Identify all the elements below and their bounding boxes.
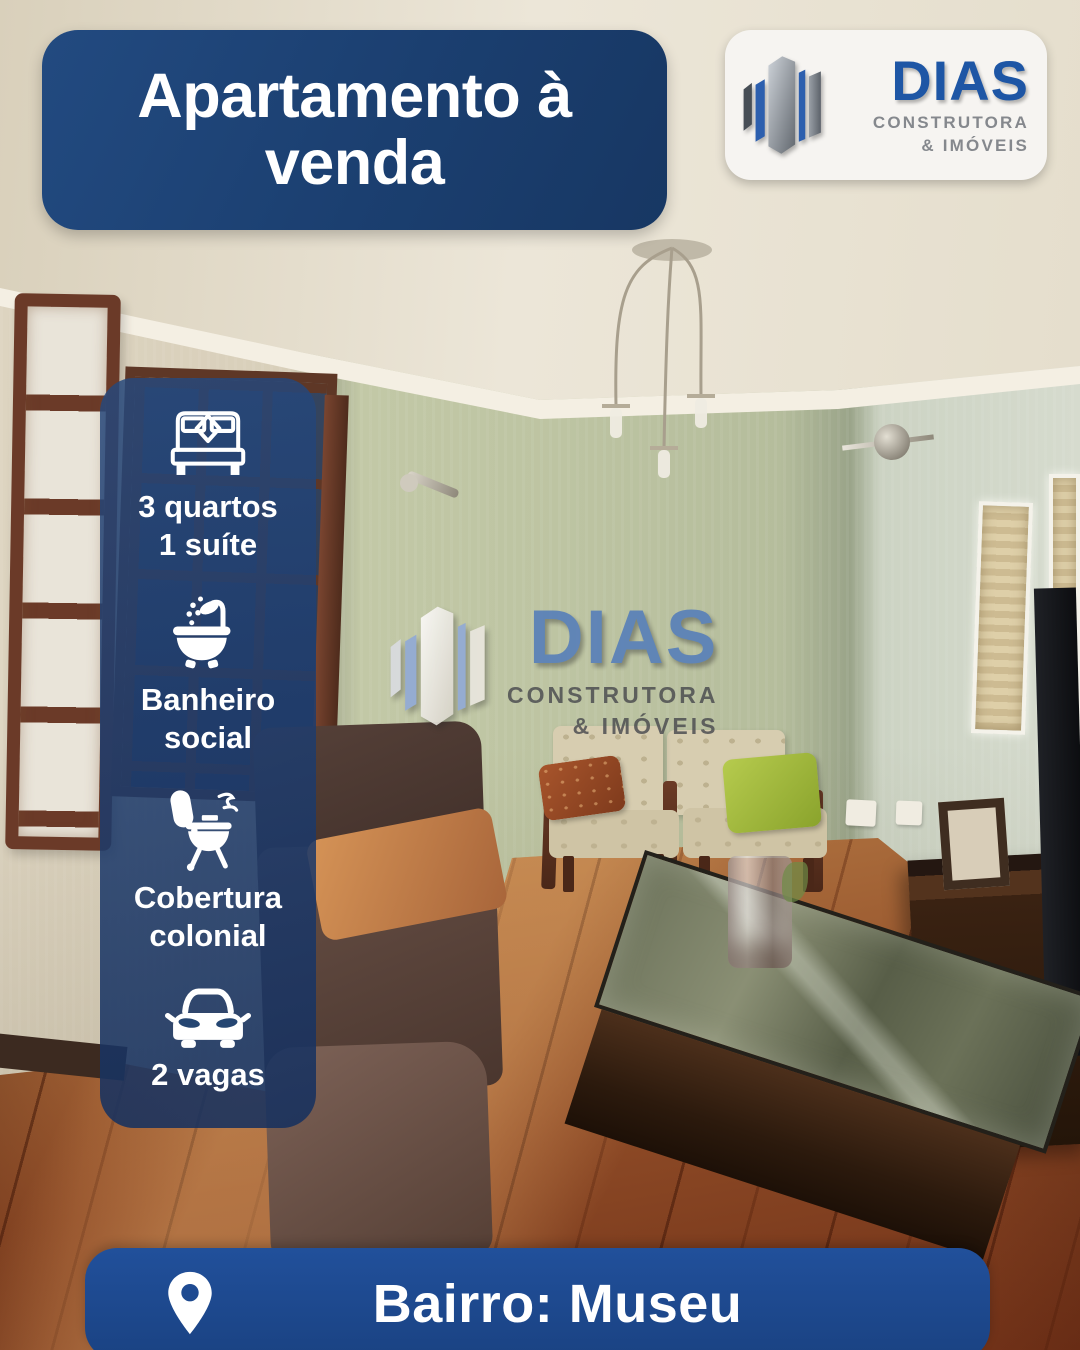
feature-bedrooms: 3 quartos 1 suíte [138, 402, 278, 564]
features-panel: 3 quartos 1 suíte Banheiro social [100, 378, 316, 1128]
picture-frame [938, 798, 1010, 890]
feature-parking: 2 vagas [151, 986, 265, 1094]
title-banner: Apartamento à venda [42, 30, 667, 230]
wall-sconce-icon [874, 424, 910, 460]
feature-text: Cobertura colonial [134, 879, 282, 955]
building-icon [739, 46, 831, 164]
barbecue-grill-icon [167, 789, 249, 871]
watermark-logo: DIAS CONSTRUTORA & IMÓVEIS [385, 580, 718, 752]
brand-tagline: CONSTRUTORA [873, 113, 1029, 133]
brand-name: DIAS [891, 54, 1029, 107]
watermark-tagline: CONSTRUTORA [507, 682, 718, 709]
watermark-brand-name: DIAS [529, 602, 719, 674]
brand-text: DIAS CONSTRUTORA & IMÓVEIS [831, 54, 1029, 156]
chair-leg [563, 856, 574, 892]
brand-logo-card: DIAS CONSTRUTORA & IMÓVEIS [725, 30, 1047, 180]
location-label: Bairro: Museu [215, 1273, 990, 1335]
right-window-blind [971, 501, 1033, 735]
feature-text: 3 quartos 1 suíte [138, 488, 278, 564]
location-bar: Bairro: Museu [85, 1248, 990, 1350]
green-pillow [722, 752, 822, 834]
feature-bathroom: Banheiro social [141, 595, 275, 757]
feature-text: 2 vagas [151, 1056, 265, 1094]
chandelier [550, 228, 780, 478]
feature-barbecue: Cobertura colonial [134, 789, 282, 955]
watermark-tagline2: & IMÓVEIS [573, 713, 719, 740]
building-icon [385, 580, 497, 752]
brand-tagline2: & IMÓVEIS [921, 136, 1029, 156]
poster-title: Apartamento à venda [137, 63, 572, 198]
bathtub-icon [168, 595, 248, 673]
orange-pillow [538, 755, 627, 822]
location-pin-icon [165, 1270, 215, 1338]
car-icon [165, 986, 251, 1048]
bed-icon [165, 402, 251, 480]
feature-text: Banheiro social [141, 681, 275, 757]
light-switch [896, 801, 923, 826]
watermark-text: DIAS CONSTRUTORA & IMÓVEIS [507, 602, 718, 752]
light-switch [845, 799, 876, 827]
property-ad-poster: DIAS CONSTRUTORA & IMÓVEIS Apartamento à… [0, 0, 1080, 1350]
wall-sconce-icon [400, 474, 418, 492]
